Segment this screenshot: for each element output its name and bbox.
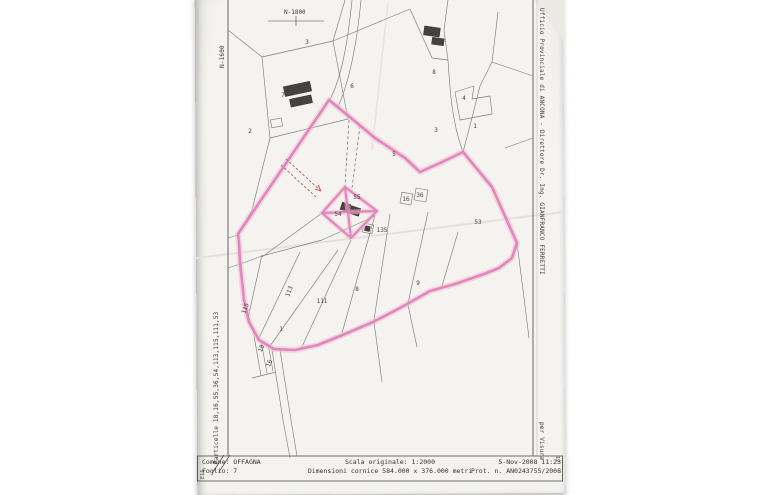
title-block-left: Comune: OFFAGNA Foglio: 7 — [202, 458, 261, 476]
parcel-number: 8 — [432, 69, 436, 76]
parcel-number: 111 — [317, 298, 328, 305]
parcel-number: 16 — [402, 196, 410, 203]
title-block-center: Scala originale: 1:2000 Dimensioni corni… — [295, 458, 485, 476]
parcel-number: 16 — [265, 359, 274, 369]
office-stamp-vertical: Ufficio Provinciale di ANCONA - Direttor… — [538, 8, 545, 275]
parcel-number: 1 — [473, 123, 477, 130]
parcel-number: 9 — [416, 280, 420, 287]
title-block-right: 5-Nov-2008 11:23 Prot. n. AN0243755/2008 — [462, 458, 561, 476]
comune-label: Comune: OFFAGNA — [202, 458, 261, 467]
parcel-number: 113 — [284, 285, 294, 298]
parcel-number: 7 — [281, 92, 285, 99]
particelle-list-vertical: Particelle 18,16,55,36,54,113,115,111,53 — [213, 312, 220, 465]
parcel-number: 2 — [248, 128, 252, 135]
dashed-track-lines — [345, 120, 360, 188]
parcel-number: 1 — [279, 326, 283, 333]
parcel-number-labels: 37268431516365455135539811311111511816 — [240, 39, 482, 368]
parcel-number: 3 — [434, 127, 438, 134]
foglio-label: Foglio: 7 — [202, 467, 261, 476]
parcel-number: 5 — [392, 151, 396, 158]
parcel-number: 6 — [350, 83, 354, 90]
parcel-number: 55 — [353, 194, 361, 201]
datetime-label: 5-Nov-2008 11:23 — [462, 458, 561, 467]
protocollo-label: Prot. n. AN0243755/2008 — [462, 467, 561, 476]
scala-label: Scala originale: 1:2000 — [295, 458, 485, 467]
parcel-number: 36 — [416, 192, 424, 199]
map-canvas: 37268431516365455135539811311111511816 — [0, 0, 764, 492]
grid-label-top: N-1800 — [284, 9, 306, 16]
dimensioni-label: Dimensioni cornice 584.000 x 376.000 met… — [295, 467, 485, 476]
parcel-number: 53 — [474, 219, 482, 226]
parcel-number: 135 — [377, 227, 388, 234]
scanned-cadastral-map: 37268431516365455135539811311111511816 N… — [0, 0, 764, 492]
per-visura-label: per Visura — [538, 422, 545, 460]
parcel-number: 8 — [355, 286, 359, 293]
parcel-number: 54 — [334, 211, 342, 218]
parcel-number: 4 — [462, 95, 466, 102]
parcel-number: 3 — [305, 39, 309, 46]
grid-label-left: N-1600 — [219, 45, 226, 68]
